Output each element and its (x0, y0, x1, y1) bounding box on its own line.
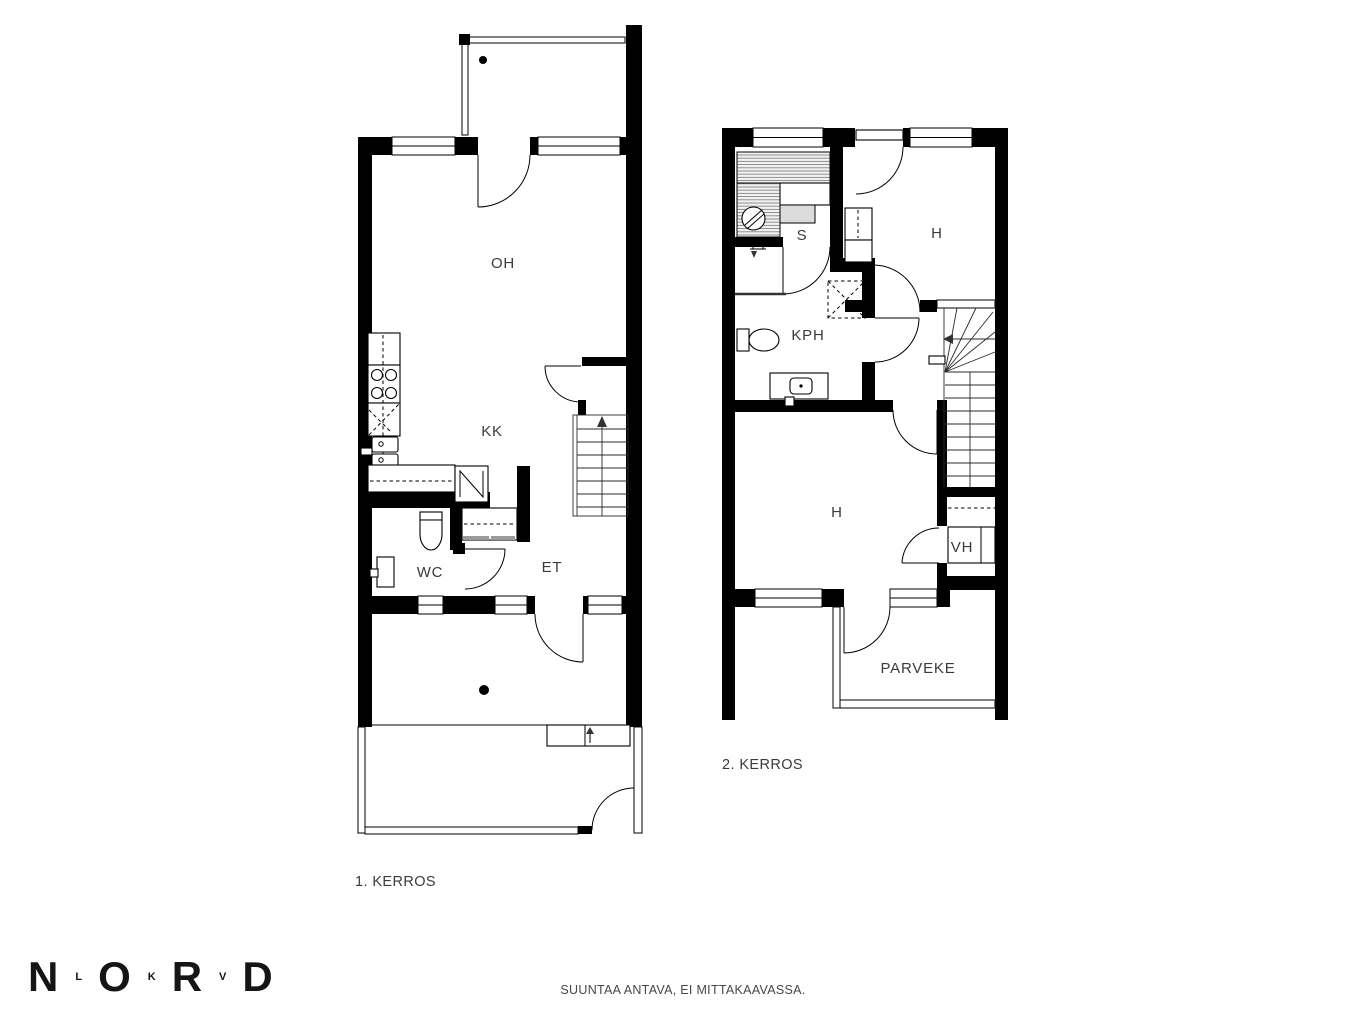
window (495, 596, 527, 614)
front-door (478, 155, 530, 207)
window (588, 596, 622, 614)
room-label-wc: WC (417, 564, 444, 581)
floor1-walls (358, 25, 642, 727)
logo-letter-v: V (219, 972, 226, 983)
window (753, 128, 823, 147)
scale-disclaimer: SUUNTAA ANTAVA, EI MITTAKAAVASSA. (0, 983, 1366, 997)
h-bottom-door (893, 410, 937, 454)
floor2-title: 2. KERROS (722, 757, 803, 773)
terrace-dot (479, 685, 489, 695)
room-label-kk: KK (481, 423, 503, 440)
floor1-kitchen (361, 333, 488, 502)
window (392, 137, 455, 155)
kitchen-counter (368, 465, 455, 492)
h-top-closet (845, 208, 872, 262)
kph-door (875, 318, 919, 362)
yard-gate (592, 788, 634, 830)
upper-cabinet (368, 403, 400, 436)
vh-door (902, 528, 939, 563)
floor1-stairs (573, 415, 628, 516)
washing-machine (828, 281, 865, 318)
window (418, 596, 443, 614)
wc-sink (370, 557, 394, 587)
stove (368, 365, 400, 403)
stair-railing (937, 300, 995, 308)
floor1-terrace (358, 685, 642, 834)
floor1-title: 1. KERROS (355, 874, 436, 890)
floor1-plan: OH KK WC ET 1. KERROS (355, 25, 642, 890)
window (755, 589, 822, 607)
fence-post (459, 34, 470, 45)
floor2-plan: S H KPH H VH PARVEKE 2. KERROS (722, 128, 1008, 773)
room-label-kph: KPH (791, 327, 824, 344)
floorplan-canvas: OH KK WC ET 1. KERROS (0, 0, 1366, 1025)
h-top-door (873, 265, 920, 312)
room-label-et: ET (542, 559, 563, 576)
logo-letter-k: K (148, 972, 156, 983)
terrace-door (535, 614, 583, 662)
handrail (929, 356, 945, 364)
entry-step (547, 725, 630, 746)
floor1-entry-yard (459, 34, 625, 135)
room-label-vh: VH (951, 539, 973, 556)
sauna-door (783, 247, 830, 294)
room-label-parveke: PARVEKE (880, 660, 955, 677)
logo-letter-l: L (75, 972, 82, 983)
drain-dot (479, 56, 487, 64)
room-label-s: S (797, 227, 808, 244)
room-label-h-bottom: H (831, 504, 843, 521)
stairs-up-arrow (597, 416, 607, 427)
floor1-hall-closet (462, 508, 517, 540)
wc-door (465, 549, 505, 589)
h-top-balcony-door (856, 130, 903, 194)
window (538, 137, 620, 155)
room-label-oh: OH (491, 255, 515, 272)
stairs-down-arrow (943, 334, 953, 344)
sauna-fixtures (737, 152, 830, 237)
toilet (737, 329, 779, 351)
room-label-h-top: H (931, 225, 943, 242)
floor1-doors (465, 155, 583, 662)
window (890, 589, 937, 607)
window (910, 128, 972, 147)
sauna-bench (737, 152, 830, 183)
sauna-heater (742, 207, 765, 230)
stairhall-door (545, 366, 581, 402)
toilet (420, 512, 442, 550)
balcony (833, 607, 995, 708)
fridge (368, 333, 400, 365)
balcony-door (844, 607, 890, 653)
gate-post (578, 826, 592, 834)
dishwasher (455, 466, 488, 502)
